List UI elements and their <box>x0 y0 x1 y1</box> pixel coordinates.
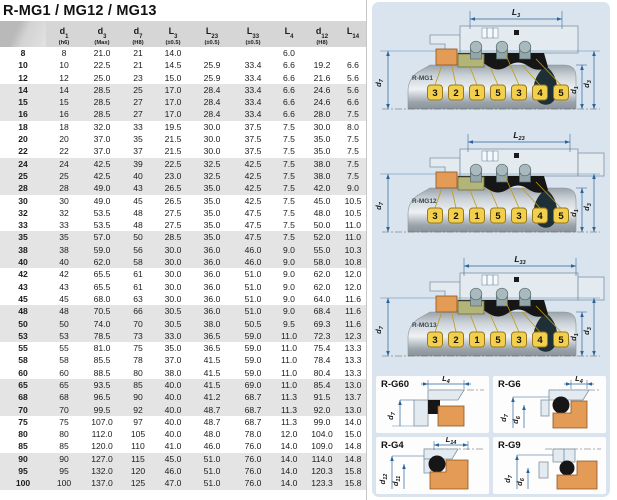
table-cell: 78.0 <box>232 428 274 440</box>
table-cell: 41.5 <box>192 367 232 379</box>
svg-text:2: 2 <box>453 211 458 222</box>
svg-text:L3: L3 <box>512 7 520 19</box>
table-cell: 9.0 <box>274 244 304 256</box>
detail-r-g6: R-G6 L4 d7 d6 <box>493 376 606 433</box>
table-cell: 30.0 <box>192 145 232 157</box>
table-cell: 36.0 <box>192 293 232 305</box>
table-cell: 30 <box>0 195 46 207</box>
table-cell: 32.0 <box>82 121 122 133</box>
svg-text:d7: d7 <box>374 201 385 210</box>
table-cell: 5.6 <box>340 72 366 84</box>
table-cell: 51.0 <box>232 281 274 293</box>
svg-text:5: 5 <box>495 88 501 99</box>
table-row: 656593.58540.041.569.011.085.413.0 <box>0 379 366 391</box>
table-cell: 27 <box>122 108 154 120</box>
table-cell: 123.3 <box>304 477 340 489</box>
table-cell: 30.0 <box>304 121 340 133</box>
corner-header <box>0 21 46 47</box>
table-cell: 50 <box>122 231 154 243</box>
svg-text:d7: d7 <box>386 411 397 420</box>
table-cell: 35 <box>122 133 154 145</box>
table-cell: 59.0 <box>232 354 274 366</box>
table-cell: 13.3 <box>340 367 366 379</box>
table-cell: 38 <box>0 244 46 256</box>
table-cell: 40 <box>46 256 82 268</box>
table-row: 505074.07030.538.050.59.569.311.6 <box>0 318 366 330</box>
table-cell: 42.5 <box>232 195 274 207</box>
table-cell: 23 <box>122 72 154 84</box>
table-cell: 9.0 <box>340 182 366 194</box>
table-cell: 66 <box>122 305 154 317</box>
table-cell: 13.0 <box>340 379 366 391</box>
callout-chip: 5 <box>554 332 569 347</box>
spring <box>519 288 531 306</box>
table-row: 181832.03319.530.037.57.530.08.0 <box>0 121 366 133</box>
table-cell: 80 <box>46 428 82 440</box>
table-cell: 15.0 <box>340 428 366 440</box>
table-cell: 100 <box>46 477 82 489</box>
table-cell: 48.7 <box>192 416 232 428</box>
table-cell: 14.0 <box>154 47 192 59</box>
table-cell: 17.0 <box>154 108 192 120</box>
table-cell: 50.0 <box>304 219 340 231</box>
column-header: L4 <box>274 21 304 47</box>
table-cell: 9.5 <box>274 318 304 330</box>
table-cell: 62.0 <box>82 256 122 268</box>
table-row: 9595132.012046.051.076.014.0120.315.8 <box>0 465 366 477</box>
table-cell: 70 <box>46 404 82 416</box>
table-cell: 50 <box>46 318 82 330</box>
table-cell: 38.0 <box>192 318 232 330</box>
table-cell: 27.5 <box>154 207 192 219</box>
table-row: 585885.57837.041.559.011.078.413.3 <box>0 354 366 366</box>
table-cell: 37.0 <box>82 133 122 145</box>
table-cell: 19.5 <box>154 121 192 133</box>
table-cell: 21.5 <box>154 145 192 157</box>
table-row: 434365.56130.036.051.09.062.012.0 <box>0 281 366 293</box>
table-cell <box>192 47 232 59</box>
svg-text:2: 2 <box>453 335 458 346</box>
table-cell: 41.5 <box>192 379 232 391</box>
svg-text:L4: L4 <box>575 376 583 385</box>
column-header: d7(H8) <box>122 21 154 47</box>
o-ring <box>560 461 575 476</box>
callout-chip: 3 <box>428 208 443 223</box>
table-cell: 47.0 <box>154 477 192 489</box>
table-cell: 8.0 <box>340 121 366 133</box>
column-header: L14 <box>340 21 366 47</box>
table-cell: 7.5 <box>340 170 366 182</box>
table-cell: 11.0 <box>274 330 304 342</box>
table-cell: 36.0 <box>192 305 232 317</box>
table-row: 353557.05028.535.047.57.552.011.0 <box>0 231 366 243</box>
table-cell: 14 <box>46 84 82 96</box>
table-cell: 85 <box>46 440 82 452</box>
gland-plate <box>428 390 464 400</box>
table-cell: 28.5 <box>154 231 192 243</box>
table-cell: 16 <box>46 108 82 120</box>
table-cell: 58.0 <box>304 256 340 268</box>
table-cell: 85 <box>122 379 154 391</box>
table-cell: 69.3 <box>304 318 340 330</box>
table-body: 8821.02114.06.0101022.52114.525.933.46.6… <box>0 47 366 490</box>
svg-text:3: 3 <box>432 335 437 346</box>
table-cell: 20 <box>0 133 46 145</box>
table-cell: 28.5 <box>82 96 122 108</box>
table-cell: 65 <box>0 379 46 391</box>
table-row: 242442.53922.532.542.57.538.07.5 <box>0 158 366 170</box>
vertical-divider <box>366 0 367 500</box>
table-row: 141428.52517.028.433.46.624.65.6 <box>0 84 366 96</box>
table-cell: 12 <box>46 72 82 84</box>
datasheet-page: R-MG1 / MG12 / MG13 d1(h6)d3(Max)d7(H8)L… <box>0 0 617 500</box>
table-row: 202037.03521.530.037.57.535.07.5 <box>0 133 366 145</box>
table-cell: 13.7 <box>340 391 366 403</box>
table-cell: 36.5 <box>192 330 232 342</box>
table-cell: 92.0 <box>304 404 340 416</box>
table-cell: 78.5 <box>82 330 122 342</box>
table-cell: 28.4 <box>192 84 232 96</box>
diagram-section: R-MG1 3215345 L3 d7 d1 d3 <box>368 0 617 500</box>
column-header: L23(±0.5) <box>192 21 232 47</box>
callout-chip: 3 <box>512 208 527 223</box>
table-cell: 53.5 <box>82 207 122 219</box>
table-cell: 43 <box>46 281 82 293</box>
svg-text:d12: d12 <box>378 474 389 485</box>
table-cell: 12.3 <box>340 330 366 342</box>
table-cell: 33 <box>46 219 82 231</box>
table-cell: 41.0 <box>154 440 192 452</box>
table-cell: 35.0 <box>192 219 232 231</box>
table-cell: 40 <box>0 256 46 268</box>
column-header: d3(Max) <box>82 21 122 47</box>
table-cell: 40.0 <box>154 404 192 416</box>
detail-r-g60: R-G60 L4 d7 <box>376 376 489 433</box>
table-cell: 11.3 <box>274 391 304 403</box>
table-cell: 75 <box>122 342 154 354</box>
svg-text:2: 2 <box>453 88 458 99</box>
table-cell: 49.0 <box>82 182 122 194</box>
svg-text:3: 3 <box>516 335 521 346</box>
spring <box>519 41 531 59</box>
table-cell: 97 <box>122 416 154 428</box>
table-cell: 38.0 <box>304 158 340 170</box>
table-cell: 25 <box>0 170 46 182</box>
table-row: 424265.56130.036.051.09.062.012.0 <box>0 268 366 280</box>
callout-chip: 3 <box>428 85 443 100</box>
table-cell: 27 <box>122 96 154 108</box>
table-cell: 107.0 <box>82 416 122 428</box>
table-cell: 6.6 <box>274 72 304 84</box>
table-cell: 137.0 <box>82 477 122 489</box>
table-cell: 12.0 <box>340 281 366 293</box>
callout-chip: 1 <box>470 332 485 347</box>
callout-chip: 4 <box>533 208 548 223</box>
table-cell: 12 <box>0 72 46 84</box>
table-cell: 35 <box>0 231 46 243</box>
table-cell: 25.9 <box>192 59 232 71</box>
table-cell: 80 <box>0 428 46 440</box>
table-cell: 6.6 <box>274 108 304 120</box>
table-cell: 45.0 <box>304 195 340 207</box>
table-cell: 61 <box>122 268 154 280</box>
table-cell: 7.5 <box>274 231 304 243</box>
spring <box>519 164 531 182</box>
table-cell: 99.5 <box>82 404 122 416</box>
dimension-table-section: R-MG1 / MG12 / MG13 d1(h6)d3(Max)d7(H8)L… <box>0 0 368 500</box>
svg-text:L33: L33 <box>514 254 525 266</box>
diagram-r-mg12: R-MG12 3215345 L23 d7 d1 d3 <box>372 128 610 248</box>
table-cell: 28 <box>46 182 82 194</box>
table-cell: 52.0 <box>304 231 340 243</box>
table-cell: 45 <box>46 293 82 305</box>
table-cell: 11.3 <box>274 416 304 428</box>
table-cell: 64.0 <box>304 293 340 305</box>
table-cell: 48 <box>0 305 46 317</box>
table-cell: 48.7 <box>192 404 232 416</box>
table-cell: 68.0 <box>82 293 122 305</box>
table-cell: 96.5 <box>82 391 122 403</box>
table-cell: 24 <box>0 158 46 170</box>
table-cell: 8 <box>0 47 46 59</box>
table-cell: 18 <box>46 121 82 133</box>
table-cell: 30.0 <box>154 244 192 256</box>
table-row: 100100137.012547.051.076.014.0123.315.8 <box>0 477 366 489</box>
table-cell: 35.0 <box>192 207 232 219</box>
svg-text:5: 5 <box>558 335 564 346</box>
table-cell: 33.0 <box>154 330 192 342</box>
spring <box>470 41 482 59</box>
table-cell: 43 <box>122 182 154 194</box>
table-cell: 68.7 <box>232 391 274 403</box>
table-cell: 33.4 <box>232 96 274 108</box>
table-row: 323253.54827.535.047.57.548.010.5 <box>0 207 366 219</box>
table-cell: 11.3 <box>274 404 304 416</box>
table-cell: 40 <box>122 170 154 182</box>
gland-plate <box>549 390 589 400</box>
table-row: 383859.05630.036.046.09.055.010.3 <box>0 244 366 256</box>
table-cell: 85 <box>0 440 46 452</box>
table-cell: 36.0 <box>192 256 232 268</box>
table-cell: 10.8 <box>340 256 366 268</box>
table-cell: 7.5 <box>274 133 304 145</box>
o-ring <box>553 397 570 414</box>
table-cell: 9.0 <box>274 305 304 317</box>
svg-text:d11: d11 <box>391 476 402 486</box>
table-row: 606088.58038.041.559.011.080.413.3 <box>0 367 366 379</box>
svg-text:1: 1 <box>474 88 480 99</box>
table-cell: 42.5 <box>82 158 122 170</box>
table-cell: 30.0 <box>192 133 232 145</box>
table-cell: 28.0 <box>304 108 340 120</box>
table-row: 151528.52717.028.433.46.624.66.6 <box>0 96 366 108</box>
table-cell: 14.5 <box>154 59 192 71</box>
table-cell: 76.0 <box>232 465 274 477</box>
table-cell: 59.0 <box>82 244 122 256</box>
table-cell: 37.5 <box>232 145 274 157</box>
table-cell: 36.5 <box>192 342 232 354</box>
svg-text:3: 3 <box>432 88 437 99</box>
callout-chip: 5 <box>491 208 506 223</box>
table-cell: 37.0 <box>82 145 122 157</box>
svg-text:1: 1 <box>474 335 480 346</box>
svg-text:5: 5 <box>558 88 564 99</box>
table-cell: 15.8 <box>340 477 366 489</box>
seat-ring <box>436 49 457 65</box>
table-cell: 88.5 <box>82 367 122 379</box>
table-cell: 80 <box>122 367 154 379</box>
table-cell: 36.0 <box>192 244 232 256</box>
table-cell: 5.6 <box>340 84 366 96</box>
table-cell: 6.6 <box>274 59 304 71</box>
table-cell: 59.0 <box>232 330 274 342</box>
table-cell: 46.0 <box>232 244 274 256</box>
table-cell: 40.0 <box>154 428 192 440</box>
table-cell: 21.6 <box>304 72 340 84</box>
svg-text:d7: d7 <box>374 78 385 87</box>
table-row: 252542.54023.032.542.57.538.07.5 <box>0 170 366 182</box>
spring <box>470 164 482 182</box>
table-cell: 21.0 <box>82 47 122 59</box>
table-cell: 114.0 <box>304 453 340 465</box>
table-cell: 93.5 <box>82 379 122 391</box>
table-cell: 40.0 <box>154 391 192 403</box>
table-row: 121225.02315.025.933.46.621.65.6 <box>0 72 366 84</box>
table-row: 8821.02114.06.0 <box>0 47 366 59</box>
table-cell: 85.5 <box>82 354 122 366</box>
table-cell: 17.0 <box>154 84 192 96</box>
table-cell: 7.5 <box>274 158 304 170</box>
table-cell: 10.3 <box>340 244 366 256</box>
diagram-r-mg1: R-MG1 3215345 L3 d7 d1 d3 <box>372 5 610 125</box>
svg-text:d3: d3 <box>582 80 593 88</box>
svg-text:1: 1 <box>474 211 480 222</box>
table-cell: 60 <box>46 367 82 379</box>
table-cell: 62.0 <box>304 281 340 293</box>
callout-chip: 2 <box>449 85 464 100</box>
column-header: d12(H8) <box>304 21 340 47</box>
svg-text:d7: d7 <box>503 474 514 483</box>
table-cell: 13.3 <box>340 354 366 366</box>
table-cell: 65.5 <box>82 281 122 293</box>
table-cell: 22 <box>0 145 46 157</box>
table-cell: 11.0 <box>274 342 304 354</box>
table-cell: 13.3 <box>340 342 366 354</box>
table-cell: 60 <box>0 367 46 379</box>
table-cell <box>340 47 366 59</box>
table-cell: 80.4 <box>304 367 340 379</box>
diagram-r-mg13: R-MG13 3215345 L33 d7 d1 d3 <box>372 252 610 372</box>
table-cell: 47.5 <box>232 207 274 219</box>
table-cell: 33 <box>122 121 154 133</box>
table-cell: 55 <box>0 342 46 354</box>
table-cell: 6.6 <box>340 96 366 108</box>
table-cell: 99.0 <box>304 416 340 428</box>
table-row: 303049.04526.535.042.57.545.010.5 <box>0 195 366 207</box>
table-cell: 22 <box>46 145 82 157</box>
callout-chip: 5 <box>554 85 569 100</box>
table-cell: 24.6 <box>304 96 340 108</box>
table-cell: 127.0 <box>82 453 122 465</box>
table-cell: 22.5 <box>82 59 122 71</box>
table-cell: 14.0 <box>340 416 366 428</box>
svg-text:4: 4 <box>537 335 543 346</box>
table-cell: 7.5 <box>340 108 366 120</box>
table-cell: 45 <box>0 293 46 305</box>
table-cell: 91.5 <box>304 391 340 403</box>
table-cell: 16 <box>0 108 46 120</box>
table-cell: 28.5 <box>82 108 122 120</box>
table-cell: 70 <box>0 404 46 416</box>
column-header: L3(±0.5) <box>154 21 192 47</box>
table-cell: 45.0 <box>154 453 192 465</box>
table-cell: 9.0 <box>274 256 304 268</box>
table-cell: 53 <box>46 330 82 342</box>
table-cell: 53.5 <box>82 219 122 231</box>
table-cell: 30.0 <box>154 256 192 268</box>
table-cell: 51.0 <box>232 293 274 305</box>
table-row: 555581.07535.036.559.011.075.413.3 <box>0 342 366 354</box>
table-cell: 30.0 <box>192 121 232 133</box>
page-title: R-MG1 / MG12 / MG13 <box>0 0 368 21</box>
table-cell: 115 <box>122 453 154 465</box>
table-cell: 14.0 <box>274 453 304 465</box>
table-row: 333353.54827.535.047.57.550.011.0 <box>0 219 366 231</box>
table-row: 9090127.011545.051.076.014.0114.014.8 <box>0 453 366 465</box>
table-cell: 95 <box>46 465 82 477</box>
table-cell: 51.0 <box>232 268 274 280</box>
table-cell: 78.4 <box>304 354 340 366</box>
column-header: d1(h6) <box>46 21 82 47</box>
table-cell: 68 <box>0 391 46 403</box>
table-cell: 7.5 <box>274 145 304 157</box>
table-cell: 48.0 <box>304 207 340 219</box>
table-cell: 90 <box>46 453 82 465</box>
table-cell: 35.0 <box>154 342 192 354</box>
table-cell: 28.4 <box>192 96 232 108</box>
table-cell: 49.0 <box>82 195 122 207</box>
table-cell: 10 <box>0 59 46 71</box>
table-cell: 48 <box>122 207 154 219</box>
table-cell: 76.0 <box>232 440 274 452</box>
svg-text:3: 3 <box>516 88 521 99</box>
table-row: 686896.59040.041.268.711.391.513.7 <box>0 391 366 403</box>
callout-chip: 3 <box>428 332 443 347</box>
table-cell: 37.5 <box>232 133 274 145</box>
table-cell: 50 <box>0 318 46 330</box>
table-cell: 62.0 <box>304 268 340 280</box>
table-cell: 30 <box>46 195 82 207</box>
detail-r-g4: R-G4 L14 d12 d11 <box>376 437 489 494</box>
table-cell: 57.0 <box>82 231 122 243</box>
table-cell: 48.0 <box>192 428 232 440</box>
table-cell: 14.8 <box>340 453 366 465</box>
table-cell: 42.5 <box>232 182 274 194</box>
table-cell: 38.0 <box>154 367 192 379</box>
table-cell: 58 <box>46 354 82 366</box>
left-dimension: d7 <box>374 174 390 232</box>
table-row: 535378.57333.036.559.011.072.312.3 <box>0 330 366 342</box>
svg-text:5: 5 <box>495 335 501 346</box>
table-cell: 11.0 <box>340 219 366 231</box>
table-cell: 26.5 <box>154 182 192 194</box>
table-cell: 125 <box>122 477 154 489</box>
svg-text:5: 5 <box>558 211 564 222</box>
callout-chip: 5 <box>491 85 506 100</box>
seat-detail-grid: R-G60 L4 d7 R-G6 L4 d7 d6 R-G4 L14 d12 d… <box>376 376 606 494</box>
table-cell: 120.3 <box>304 465 340 477</box>
table-cell: 110 <box>122 440 154 452</box>
